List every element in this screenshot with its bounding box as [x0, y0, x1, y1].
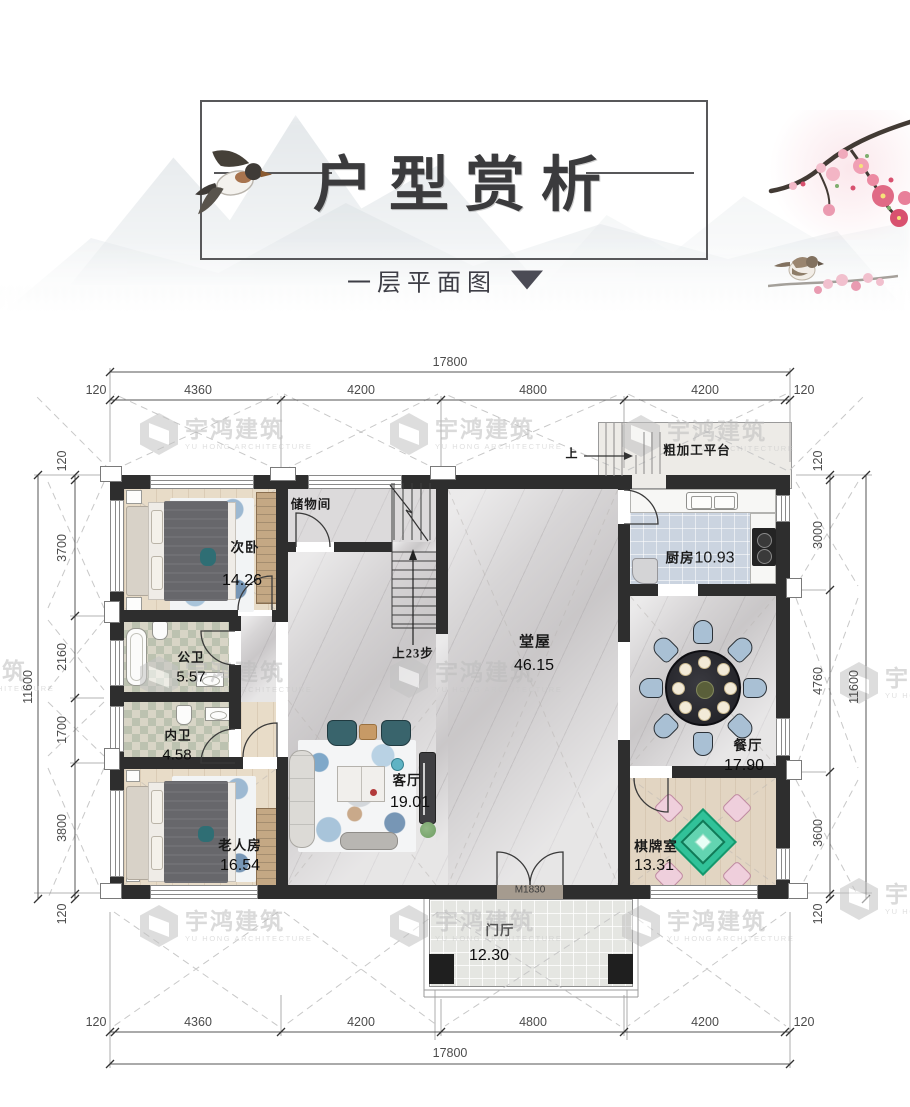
wall-junction-frame — [786, 760, 802, 780]
wall-interior — [618, 524, 630, 590]
dim-top-seg: 4360 — [184, 383, 212, 397]
watermark: 宇鸿建筑YU HONG ARCHITECTURE — [140, 905, 312, 947]
bench — [340, 832, 398, 850]
room-floor-hall-strip — [436, 634, 448, 885]
dim-top-seg: 120 — [86, 383, 107, 397]
dim-bottom-seg: 4200 — [347, 1015, 375, 1029]
wall-junction-frame — [100, 883, 122, 899]
wall-interior — [110, 610, 238, 622]
window — [776, 495, 790, 522]
dim-right-seg: 3600 — [811, 819, 825, 847]
room-label-bath-public: 公卫 — [177, 647, 204, 666]
armchair — [381, 720, 411, 746]
stairs-note: 上23步 — [392, 643, 434, 662]
dim-bottom-seg: 120 — [86, 1015, 107, 1029]
yuhong-logo-icon — [840, 878, 878, 920]
plan-subtitle-text: 一层平面图 — [347, 263, 497, 298]
yuhong-logo-icon — [390, 413, 428, 455]
nightstand — [126, 770, 140, 782]
corridor-floor-bottom — [241, 702, 276, 757]
room-floor-hall — [448, 489, 618, 885]
room-area-bath-inner: 4.58 — [162, 747, 191, 764]
yuhong-logo-icon — [390, 905, 428, 947]
wall-junction-frame — [430, 466, 456, 480]
dim-top-seg: 4200 — [347, 383, 375, 397]
toilet — [152, 621, 168, 640]
dim-top-seg: 4200 — [691, 383, 719, 397]
room-floor-foyer — [429, 899, 633, 987]
dim-top-seg: 120 — [794, 383, 815, 397]
wall-interior — [436, 482, 448, 634]
watermark: 宇鸿建筑YU HONG ARCHITECTURE — [622, 905, 794, 947]
yuhong-logo-icon — [140, 905, 178, 947]
dim-right-seg: 4760 — [811, 667, 825, 695]
dim-left-seg: 120 — [55, 451, 69, 472]
room-label-dining: 餐厅 — [734, 734, 763, 754]
window — [776, 718, 790, 756]
wall-interior — [698, 584, 776, 596]
wall-exterior-top — [666, 475, 790, 489]
room-area-elder: 16.54 — [220, 857, 260, 875]
kitchen-sink — [686, 492, 738, 510]
dining-chair — [639, 678, 663, 698]
bathtub — [126, 628, 147, 686]
bed-pillow — [151, 510, 163, 544]
dim-right-total: 11600 — [847, 670, 861, 704]
dim-bottom-seg: 120 — [794, 1015, 815, 1029]
armchair — [327, 720, 357, 746]
platform-up-note: 上 — [565, 445, 578, 462]
wall-exterior-right — [776, 475, 790, 899]
tv-console — [419, 752, 436, 824]
bed-duvet — [164, 501, 228, 601]
bed-pillow — [151, 790, 163, 824]
dim-top-total: 17800 — [433, 355, 468, 369]
sofa — [289, 750, 315, 848]
dim-left-seg: 3800 — [55, 814, 69, 842]
watermark: 宇鸿建筑YU HONG ARCHITECTURE — [390, 413, 562, 455]
fridge — [632, 558, 658, 584]
dining-chair — [743, 678, 767, 698]
side-table — [359, 724, 377, 740]
bed-pillow — [151, 836, 163, 870]
room-label-storage: 储物间 — [291, 494, 332, 513]
window — [110, 706, 124, 752]
window — [150, 885, 258, 899]
room-label-bath-inner: 内卫 — [164, 725, 191, 744]
dim-bottom-total: 17800 — [433, 1046, 468, 1060]
room-label-elder: 老人房 — [218, 834, 262, 854]
dim-bottom-seg: 4360 — [184, 1015, 212, 1029]
wall-interior — [276, 482, 288, 610]
wall-interior — [334, 542, 392, 552]
yuhong-logo-icon — [140, 413, 178, 455]
plan-subtitle: 一层平面图 — [347, 263, 543, 298]
wall-interior — [229, 616, 241, 631]
bed-headboard — [126, 506, 150, 596]
room-label-living: 客厅 — [393, 769, 422, 789]
wall-interior — [618, 482, 630, 490]
wall-junction-frame — [786, 578, 802, 598]
floorplan-page: 户型赏析 — [0, 0, 910, 1107]
wall-junction-frame — [270, 467, 296, 481]
stove — [752, 528, 776, 566]
wall-interior — [276, 769, 288, 885]
wall-junction-frame — [104, 748, 120, 770]
down-triangle-icon — [511, 271, 543, 290]
window — [308, 475, 402, 489]
wall-interior — [618, 590, 630, 642]
toilet — [176, 705, 192, 725]
bed-pillow — [151, 556, 163, 590]
room-area-dining: 17.90 — [724, 757, 764, 775]
wall-junction-frame — [788, 883, 808, 899]
porch-column — [608, 954, 633, 984]
room-area-bedroom2: 14.26 — [222, 572, 262, 590]
room-area-hall: 46.15 — [514, 657, 554, 675]
window — [110, 500, 124, 592]
bed-headboard — [126, 786, 150, 880]
bed-duvet — [164, 781, 228, 883]
wall-interior — [122, 692, 229, 702]
wall-interior — [618, 740, 630, 885]
window — [776, 848, 790, 880]
watermark: 宇鸿建筑YU HONG ARCHITECTURE — [140, 413, 312, 455]
wall-junction-frame — [100, 466, 122, 482]
wall-interior — [277, 757, 288, 769]
room-label-foyer: 门厅 — [486, 919, 515, 939]
teal-throw — [198, 826, 214, 842]
nightstand — [126, 597, 142, 611]
dining-table — [665, 650, 741, 726]
corridor-floor-top — [241, 616, 276, 702]
window — [110, 790, 124, 877]
entry-door-tag: M1830 — [515, 885, 546, 896]
nightstand — [126, 490, 142, 504]
room-label-chess: 棋牌室 — [634, 835, 678, 855]
teal-throw — [200, 548, 216, 566]
page-title: 户型赏析 — [313, 137, 617, 224]
room-label-kitchen: 厨房10.93 — [665, 547, 734, 568]
porch-column — [429, 954, 454, 984]
bird-icon — [192, 146, 278, 220]
coffee-table — [337, 766, 385, 802]
dim-right-seg: 3000 — [811, 521, 825, 549]
window — [650, 885, 758, 899]
sparrow-icon — [768, 240, 898, 300]
dim-right-seg: 120 — [811, 904, 825, 925]
plant — [420, 822, 436, 838]
wall-interior — [272, 610, 288, 622]
dim-right-seg: 120 — [811, 451, 825, 472]
wall-interior — [288, 542, 296, 552]
dim-left-seg: 3700 — [55, 534, 69, 562]
window — [150, 475, 254, 489]
dim-left-seg: 120 — [55, 904, 69, 925]
room-label-bedroom2: 次卧 — [231, 536, 260, 556]
wall-interior — [229, 665, 241, 729]
room-area-bath-public: 5.57 — [176, 669, 205, 686]
window — [110, 640, 124, 686]
sink — [205, 707, 230, 721]
room-label-platform: 粗加工平台 — [663, 440, 731, 459]
dim-left-seg: 2160 — [55, 643, 69, 671]
room-area-living: 19.01 — [390, 794, 430, 812]
wall-junction-frame — [104, 601, 120, 623]
dim-bottom-seg: 4200 — [691, 1015, 719, 1029]
dim-left-total: 11600 — [21, 670, 35, 704]
dim-bottom-seg: 4800 — [519, 1015, 547, 1029]
dining-chair — [693, 620, 713, 644]
room-label-hall: 堂屋 — [519, 631, 551, 652]
dining-chair — [693, 732, 713, 756]
dim-left-seg: 1700 — [55, 716, 69, 744]
watermark: 宇鸿建筑YU HONG ARCHITECTURE — [840, 878, 910, 920]
room-area-foyer: 12.30 — [469, 947, 509, 965]
dim-top-seg: 4800 — [519, 383, 547, 397]
room-area-chess: 13.31 — [634, 857, 674, 875]
